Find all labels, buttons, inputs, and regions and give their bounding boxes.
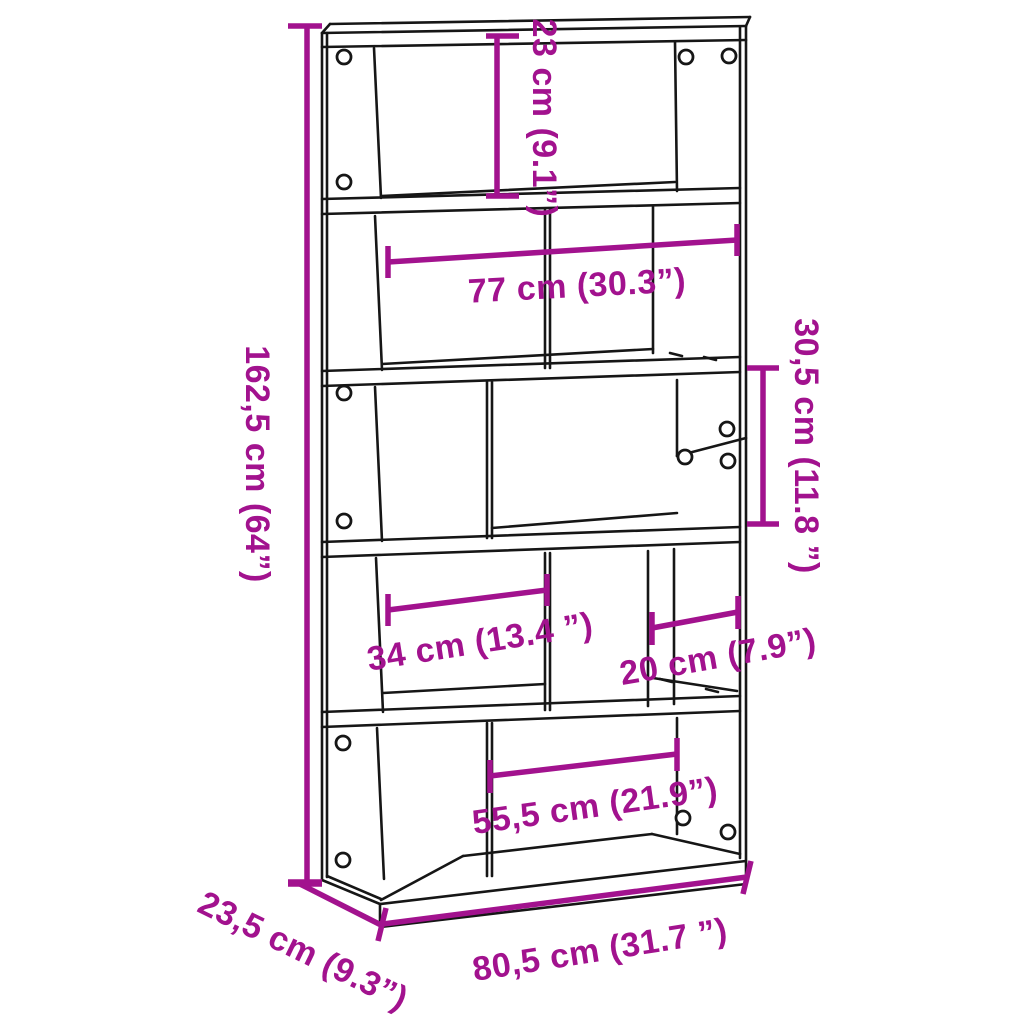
dim-left-compartment-width: 34 cm (13.4 ”) — [364, 574, 595, 679]
left-compartment-width-label: 34 cm (13.4 ”) — [364, 605, 595, 678]
bottom-compartment-width-label: 55,5 cm (21.9”) — [470, 770, 720, 842]
dimension-diagram: 162,5 cm (64”) 23 cm (9.1”) 77 cm (30.3”… — [0, 0, 1024, 1024]
bookcase-diagram-svg: 162,5 cm (64”) 23 cm (9.1”) 77 cm (30.3”… — [0, 0, 1024, 1024]
dim-total-width: 80,5 cm (31.7 ”) — [378, 861, 751, 989]
dim-total-height: 162,5 cm (64”) — [238, 26, 322, 882]
top-compartment-height-label: 23 cm (9.1”) — [525, 19, 563, 218]
dim-top-compartment-height: 23 cm (9.1”) — [486, 19, 563, 218]
compartment-height-label: 30,5 cm (11.8 ”) — [787, 318, 825, 574]
dim-inner-width: 77 cm (30.3”) — [388, 224, 737, 311]
total-height-label: 162,5 cm (64”) — [238, 345, 276, 583]
dim-bottom-compartment-width: 55,5 cm (21.9”) — [470, 738, 720, 842]
total-width-label: 80,5 cm (31.7 ”) — [470, 911, 730, 989]
dim-compartment-height: 30,5 cm (11.8 ”) — [747, 318, 825, 574]
